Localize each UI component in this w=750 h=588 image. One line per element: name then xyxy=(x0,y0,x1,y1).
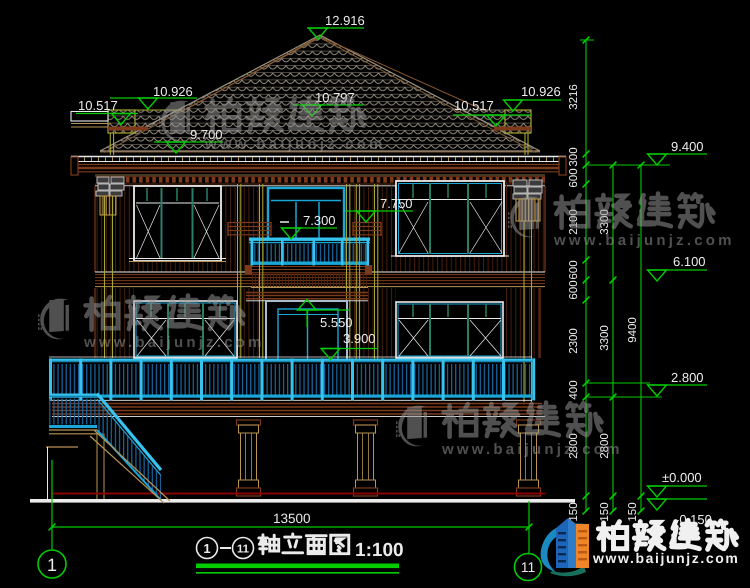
svg-text:600: 600 xyxy=(568,260,580,279)
svg-text:11: 11 xyxy=(237,544,250,556)
svg-text:5.550: 5.550 xyxy=(320,315,353,330)
svg-text:10.926: 10.926 xyxy=(521,84,561,99)
svg-text:www.baijunjz.com: www.baijunjz.com xyxy=(592,550,739,566)
svg-text:2300: 2300 xyxy=(568,328,580,354)
svg-text:3.900: 3.900 xyxy=(343,331,376,346)
svg-text:2.800: 2.800 xyxy=(671,370,704,385)
svg-text:www.baijunjz.com: www.baijunjz.com xyxy=(83,334,265,351)
svg-text:11: 11 xyxy=(521,559,536,575)
svg-text:7.750: 7.750 xyxy=(380,196,413,211)
svg-text:6.100: 6.100 xyxy=(673,254,706,269)
svg-text:600: 600 xyxy=(568,280,580,299)
svg-text:150: 150 xyxy=(568,502,580,521)
svg-text:3300: 3300 xyxy=(599,325,611,351)
svg-text:9.400: 9.400 xyxy=(671,139,704,154)
svg-text:10.517: 10.517 xyxy=(454,98,494,113)
svg-text:10.517: 10.517 xyxy=(78,98,118,113)
svg-text:3216: 3216 xyxy=(568,84,580,110)
svg-text:1: 1 xyxy=(47,555,57,575)
svg-text:www.baijunjz.com: www.baijunjz.com xyxy=(553,232,735,249)
svg-text:10.926: 10.926 xyxy=(153,84,193,99)
svg-text:13500: 13500 xyxy=(273,511,311,526)
svg-text:150: 150 xyxy=(627,502,639,521)
svg-text:600: 600 xyxy=(568,168,580,187)
svg-text:12.916: 12.916 xyxy=(325,13,365,28)
svg-text:9400: 9400 xyxy=(627,317,639,343)
svg-text:±0.000: ±0.000 xyxy=(662,470,702,485)
svg-text:1:100: 1:100 xyxy=(355,540,404,561)
svg-text:150: 150 xyxy=(599,502,611,521)
svg-text:www.baijunjz.com: www.baijunjz.com xyxy=(204,136,386,153)
svg-text:400: 400 xyxy=(568,380,580,399)
svg-text:7.300: 7.300 xyxy=(303,213,336,228)
svg-text:300: 300 xyxy=(568,147,580,166)
svg-text:1: 1 xyxy=(203,541,210,556)
svg-text:www.baijunjz.com: www.baijunjz.com xyxy=(441,441,623,458)
